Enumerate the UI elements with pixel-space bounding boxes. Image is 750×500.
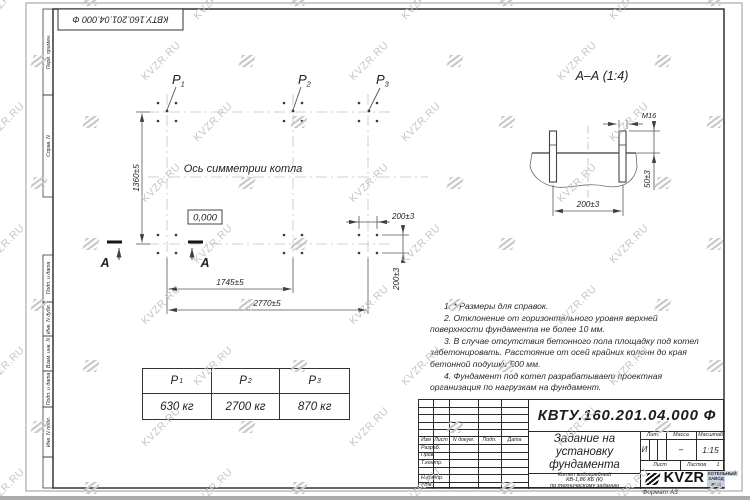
margin-label: Справ. N (46, 135, 52, 157)
rotated-doc-number: КВТУ.160.201.04.000 Ф (73, 15, 169, 25)
col-data: Дата (501, 436, 528, 444)
cut-label-a-right: А (199, 256, 209, 270)
row-razrab: Разраб. (419, 444, 451, 452)
format-label: Формат А3 (590, 489, 730, 496)
col-podp: Подп. (478, 436, 501, 444)
col-izm: Изм (419, 436, 433, 444)
load-table: P1 P2 P3 630 кг 2700 кг 870 кг (142, 368, 350, 420)
load-point-leaders (167, 87, 380, 110)
lit-label: Лит. (640, 431, 666, 439)
load-point-p3: P3 (376, 72, 390, 89)
load-table-header: P3 (280, 369, 349, 394)
note-3: 3. В случае отсутствия бетонного пола пл… (430, 336, 712, 371)
doc-subject: Котел водогрейный КВ-1,86 КБ (К) по техн… (529, 473, 640, 489)
mass-label: Масса (666, 431, 696, 439)
doc-number: КВТУ.160.201.04.000 Ф (529, 400, 725, 431)
load-point-p2: P2 (298, 72, 312, 89)
lit-value: И (640, 439, 649, 460)
note-2: 2. Отклонение от горизонтального уровня … (430, 313, 712, 336)
dim-bolt-h-text: 200±3 (391, 212, 415, 221)
elevation-value: 0,000 (193, 213, 217, 224)
title-block: Изм Лист N докум. Подп. Дата Разраб. Про… (418, 399, 724, 488)
drawing-sheet: Перв. примен. Справ. N Подп. и дата Инв.… (0, 0, 750, 500)
row-prov: Пров. (419, 452, 451, 460)
cut-label-a-left: А (99, 256, 109, 270)
scan-shadow (0, 496, 750, 500)
row-utv: Утв. (419, 482, 451, 490)
load-table-value: 2700 кг (212, 394, 281, 419)
dim-50-text: 50±3 (643, 170, 652, 188)
col-ndocum: N докум. (449, 436, 478, 444)
anchor-bolt-dots (157, 102, 379, 255)
row-nkontr: Н.контр. (419, 474, 451, 482)
plan-view: P1 P2 P3 Ось симметрии котла 0,000 1360±… (99, 72, 428, 314)
dim-bolt-v-text: 200±3 (392, 267, 401, 291)
sheets-label: Листов (680, 460, 713, 470)
load-table-header: P2 (212, 369, 281, 394)
row-blank (419, 467, 451, 475)
col-list: Лист (433, 436, 449, 444)
bolt-size-label: М16 (642, 111, 657, 120)
margin-label: Взам. инв. N (46, 338, 52, 368)
notes-block: 1. * Размеры для справок. 2. Отклонение … (430, 301, 712, 394)
load-table-value: 630 кг (143, 394, 212, 419)
margin-label: Инв. N подл. (46, 417, 52, 447)
note-1: 1. * Размеры для справок. (430, 301, 712, 313)
kvzr-logo-icon (644, 473, 660, 485)
section-title: А–А (1:4) (575, 69, 629, 83)
kvzr-logo-text: KVZR (661, 470, 707, 486)
symmetry-axis-label: Ось симметрии котла (184, 163, 303, 175)
scale-label: Масштаб (696, 431, 725, 439)
section-cut-marks: А А (99, 242, 209, 270)
load-point-p1: P1 (172, 72, 185, 89)
dim-1745-text: 1745±5 (216, 278, 244, 287)
margin-label: Подп. и дата (46, 262, 52, 295)
dim-1360-text: 1360±5 (132, 164, 141, 192)
load-table-value: 870 кг (280, 394, 349, 419)
margin-label: Перв. примен. (46, 35, 52, 69)
dim-2770-text: 2770±5 (252, 299, 281, 308)
load-table-header: P1 (143, 369, 212, 394)
mass-value: – (666, 439, 696, 460)
row-tkontr: Т.контр. (419, 459, 451, 467)
dim-m16 (603, 120, 643, 129)
doc-title: Задание на установку фундамента (529, 432, 640, 473)
margin-label: Подп. и дата (46, 373, 52, 406)
section-view: А–А (1:4) М16 (530, 69, 660, 216)
note-4: 4. Фундамент под котел разрабатывает про… (430, 371, 712, 394)
plan-axes (148, 94, 428, 263)
sheet-label: Лист (640, 460, 680, 470)
scale-value: 1:15 (696, 439, 725, 460)
margin-label: Инв. N дубл. (46, 304, 52, 334)
sheets-value: 1 (711, 460, 725, 470)
dim-200-section-text: 200±3 (576, 200, 600, 209)
dim-bolt-group (346, 216, 409, 262)
kvzr-logo-subtext: КОТЕЛЬНЫЙ ЗАВОД РЭП (707, 473, 725, 486)
